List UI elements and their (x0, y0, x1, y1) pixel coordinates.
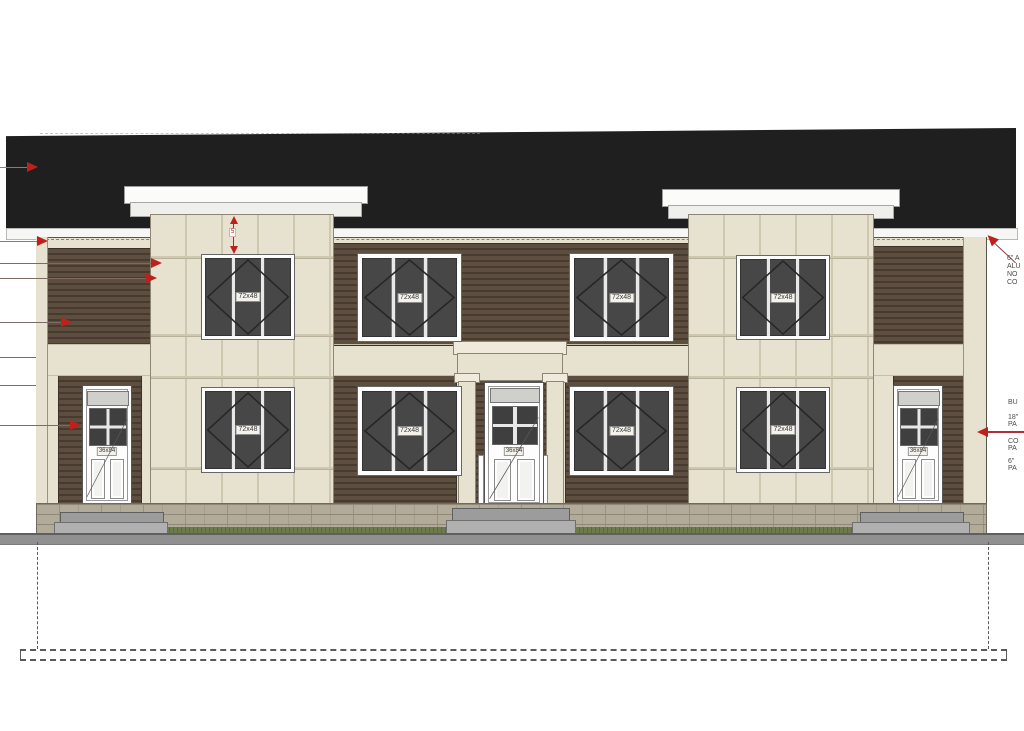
window: 72x48 (570, 387, 673, 475)
window: 72x48 (358, 254, 461, 341)
foundation-line-left (37, 542, 38, 649)
tower-batten (689, 376, 873, 378)
roof-note-line: CO (1007, 279, 1018, 287)
leader-line (0, 322, 62, 323)
leader-arrow-icon (977, 427, 988, 437)
corner-board-right (963, 237, 986, 505)
leader-arrow-icon (146, 273, 157, 283)
foundation-footing-bottom (20, 659, 1007, 661)
window-size-label: 72x48 (397, 426, 422, 436)
leader-line (0, 241, 38, 242)
leader-arrow-icon (70, 420, 81, 430)
entry-pilaster-right (546, 381, 564, 507)
leader-arrow-icon (61, 317, 72, 327)
leader-line (0, 385, 36, 386)
dimension-arrow-down-icon (230, 246, 238, 254)
leader-line (0, 263, 152, 264)
roof-note-line: 6" A (1007, 255, 1020, 263)
dimension-label: 5 (229, 228, 236, 237)
siding-2f-right (872, 246, 965, 345)
wall-note-line: BU (1008, 399, 1018, 407)
foundation-line-right (988, 542, 989, 649)
wall-note-line: PA (1008, 465, 1017, 473)
leader-line (0, 425, 71, 426)
grade-line (0, 533, 1024, 545)
window: 72x48 (570, 254, 673, 341)
window-size-label: 72x48 (770, 425, 795, 435)
roof-note-line: NO (1007, 271, 1018, 279)
window-size-label: 72x48 (770, 293, 795, 303)
window-size-label: 72x48 (397, 293, 422, 303)
tower-batten (151, 376, 333, 378)
entry-door-left: 36x84 (82, 385, 132, 505)
window-size-label: 72x48 (609, 426, 634, 436)
wall-note-line: PA (1008, 445, 1017, 453)
leader-line (0, 278, 147, 279)
window-size-label: 72x48 (235, 425, 260, 435)
roof-note-line: ALU (1007, 263, 1021, 271)
dimension-arrow-up-icon (230, 216, 238, 224)
roof-hidden-line (40, 133, 480, 134)
foundation-footing-top (20, 649, 1007, 651)
window-size-label: 72x48 (235, 292, 260, 302)
elevation-drawing: 72x48 72x48 72x48 72x48 72x48 72x48 72x4… (0, 0, 1024, 731)
entry-door-right: 36x84 (893, 385, 943, 505)
leader-line (0, 357, 36, 358)
wall-note-line: PA (1008, 421, 1017, 429)
leader-arrow-icon (27, 162, 38, 172)
window: 72x48 (358, 387, 461, 475)
footing-end-left (20, 649, 21, 661)
window: 72x48 (202, 388, 294, 472)
window: 72x48 (737, 388, 829, 472)
leader-line (988, 431, 1024, 433)
leader-line (0, 167, 28, 168)
footing-end-right (1006, 649, 1007, 661)
window: 72x48 (737, 256, 829, 339)
leader-arrow-icon (37, 236, 48, 246)
entry-door-center: 36x84 (484, 382, 544, 507)
window-size-label: 72x48 (609, 293, 634, 303)
leader-arrow-icon (151, 258, 162, 268)
window: 72x48 (202, 255, 294, 339)
